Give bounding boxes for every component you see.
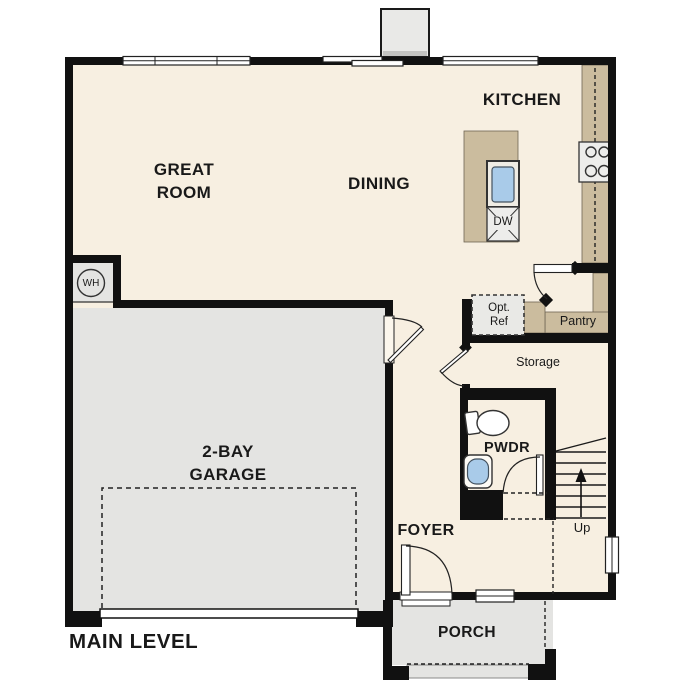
garage-label: 2-BAY GARAGE: [169, 440, 287, 486]
great-room-label: GREAT ROOM: [134, 158, 234, 204]
powder-label: PWDR: [467, 437, 547, 460]
water-heater-label: WH: [77, 277, 105, 291]
stairs-up-label: Up: [562, 521, 602, 535]
window-kitchen: [443, 57, 538, 66]
island-sink: [487, 161, 519, 207]
storage-label: Storage: [507, 356, 569, 370]
cooktop: [579, 142, 613, 182]
window-great-room: [123, 57, 250, 66]
garage-door: [100, 609, 358, 618]
window-foyer: [476, 590, 514, 602]
dining-label: DINING: [329, 172, 429, 195]
chimney: [381, 9, 429, 57]
kitchen-label: KITCHEN: [462, 88, 582, 111]
floor-plan-drawing: [0, 0, 687, 687]
porch-label: PORCH: [427, 621, 507, 644]
plan-title: MAIN LEVEL: [69, 630, 229, 653]
floor-plan: KITCHEN GREAT ROOM DINING 2-BAY GARAGE F…: [0, 0, 687, 687]
pantry-label: Pantry: [548, 315, 608, 329]
porch-step: [407, 665, 530, 678]
foyer-label: FOYER: [386, 519, 466, 542]
toilet: [465, 411, 509, 436]
optional-ref-label-line1: Opt.: [473, 302, 525, 316]
dishwasher-label: DW: [491, 216, 515, 230]
optional-ref-label-line2: Ref: [473, 316, 525, 330]
window-stair-hall: [606, 537, 619, 573]
